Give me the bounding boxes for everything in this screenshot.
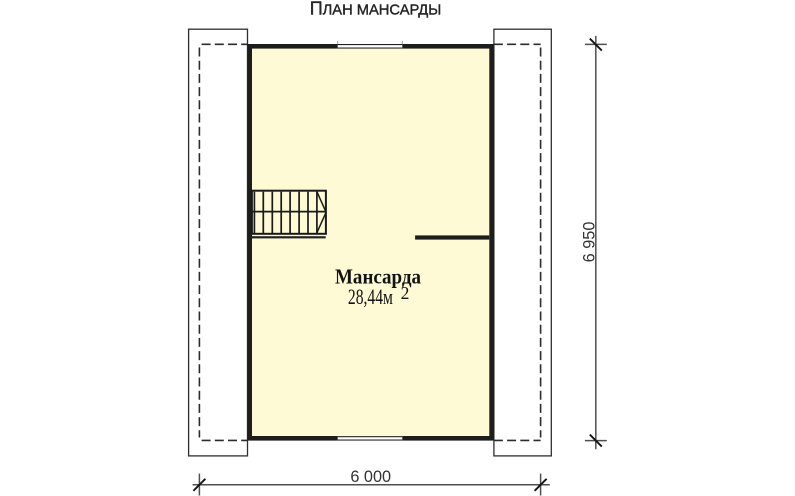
svg-text:2: 2 [401,283,410,303]
svg-text:6 950: 6 950 [581,222,599,263]
svg-text:ПЛАН МАНСАРДЫ: ПЛАН МАНСАРДЫ [310,0,442,19]
svg-text:6 000: 6 000 [350,468,391,486]
svg-text:28,44м: 28,44м [348,284,393,309]
